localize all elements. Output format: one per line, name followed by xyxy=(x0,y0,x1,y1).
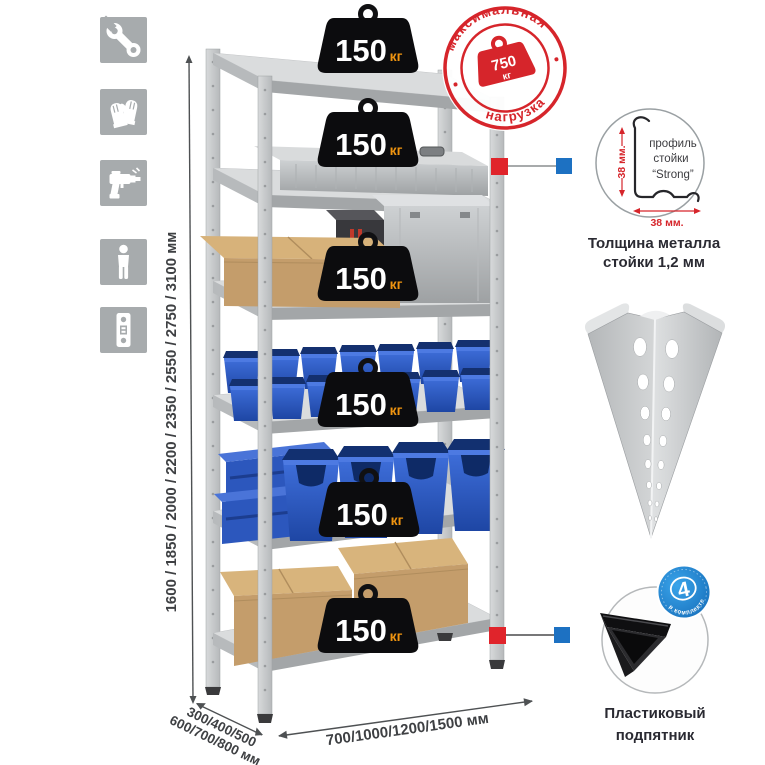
width-dimension: 700/1000/1200/1500 мм xyxy=(277,697,533,749)
rack-foot xyxy=(257,714,273,723)
foot-caption-line2: подпятник xyxy=(616,727,695,744)
svg-text:кг: кг xyxy=(390,48,403,64)
svg-text:150: 150 xyxy=(335,33,387,68)
foot-callout-connector xyxy=(489,627,570,644)
upright-post-image xyxy=(585,303,725,538)
blue-marker xyxy=(554,627,570,643)
weight-badge: 150 кг xyxy=(318,7,419,74)
svg-text:38 мм.: 38 мм. xyxy=(616,145,628,178)
depth-dimension: 300/400/500 600/700/800 мм xyxy=(167,699,269,765)
rack-foot xyxy=(205,687,221,695)
profile-horizontal-dimension: 38 мм. xyxy=(633,208,701,229)
profile-caption-line2: стойки 1,2 мм xyxy=(603,254,705,271)
storage-bin xyxy=(268,377,306,419)
svg-text:150: 150 xyxy=(336,497,388,532)
sidebar-icons xyxy=(100,15,147,353)
svg-text:150: 150 xyxy=(335,387,387,422)
svg-text:стойки: стойки xyxy=(653,153,688,165)
svg-text:кг: кг xyxy=(390,628,403,644)
svg-text:“Strong”: “Strong” xyxy=(652,169,694,181)
svg-text:кг: кг xyxy=(391,512,404,528)
svg-text:кг: кг xyxy=(390,142,403,158)
svg-text:150: 150 xyxy=(335,613,387,648)
infographic-canvas: 150 кг 150 кг 150 кг 150 кг 150 кг 150 к… xyxy=(0,0,765,765)
person-icon xyxy=(100,239,147,285)
svg-text:38 мм.: 38 мм. xyxy=(650,217,683,229)
svg-text:кг: кг xyxy=(390,276,403,292)
rack-foot xyxy=(489,660,505,669)
plastic-foot-detail: 4 в комплекте Пластиковый подпятник xyxy=(600,561,715,744)
wrench-icon xyxy=(100,15,147,63)
blue-marker xyxy=(556,158,572,174)
gloves-icon xyxy=(100,89,147,135)
height-dimension-label: 1600 / 1850 / 2000 / 2200 / 2350 / 2550 … xyxy=(163,232,180,613)
shelving-infographic: 150 кг 150 кг 150 кг 150 кг 150 кг 150 к… xyxy=(0,0,765,765)
foot-caption-line1: Пластиковый xyxy=(604,705,705,722)
perforated-post-icon xyxy=(100,307,147,353)
svg-text:профиль: профиль xyxy=(649,138,697,150)
red-marker xyxy=(491,158,508,175)
profile-detail: 38 мм. 38 мм. профиль стойки “Strong” То… xyxy=(588,109,721,271)
profile-callout-connector xyxy=(491,158,572,175)
red-marker xyxy=(489,627,506,644)
width-dimension-label: 700/1000/1200/1500 мм xyxy=(325,710,490,749)
profile-caption-line1: Толщина металла xyxy=(588,235,721,252)
rack-foot xyxy=(437,633,453,641)
svg-text:150: 150 xyxy=(335,261,387,296)
weight-badge: 150 кг xyxy=(318,101,419,168)
storage-bin xyxy=(422,370,460,412)
drill-icon xyxy=(100,160,147,206)
height-dimension: 1600 / 1850 / 2000 / 2200 / 2350 / 2550 … xyxy=(163,55,197,704)
svg-text:150: 150 xyxy=(335,127,387,162)
svg-text:кг: кг xyxy=(390,402,403,418)
